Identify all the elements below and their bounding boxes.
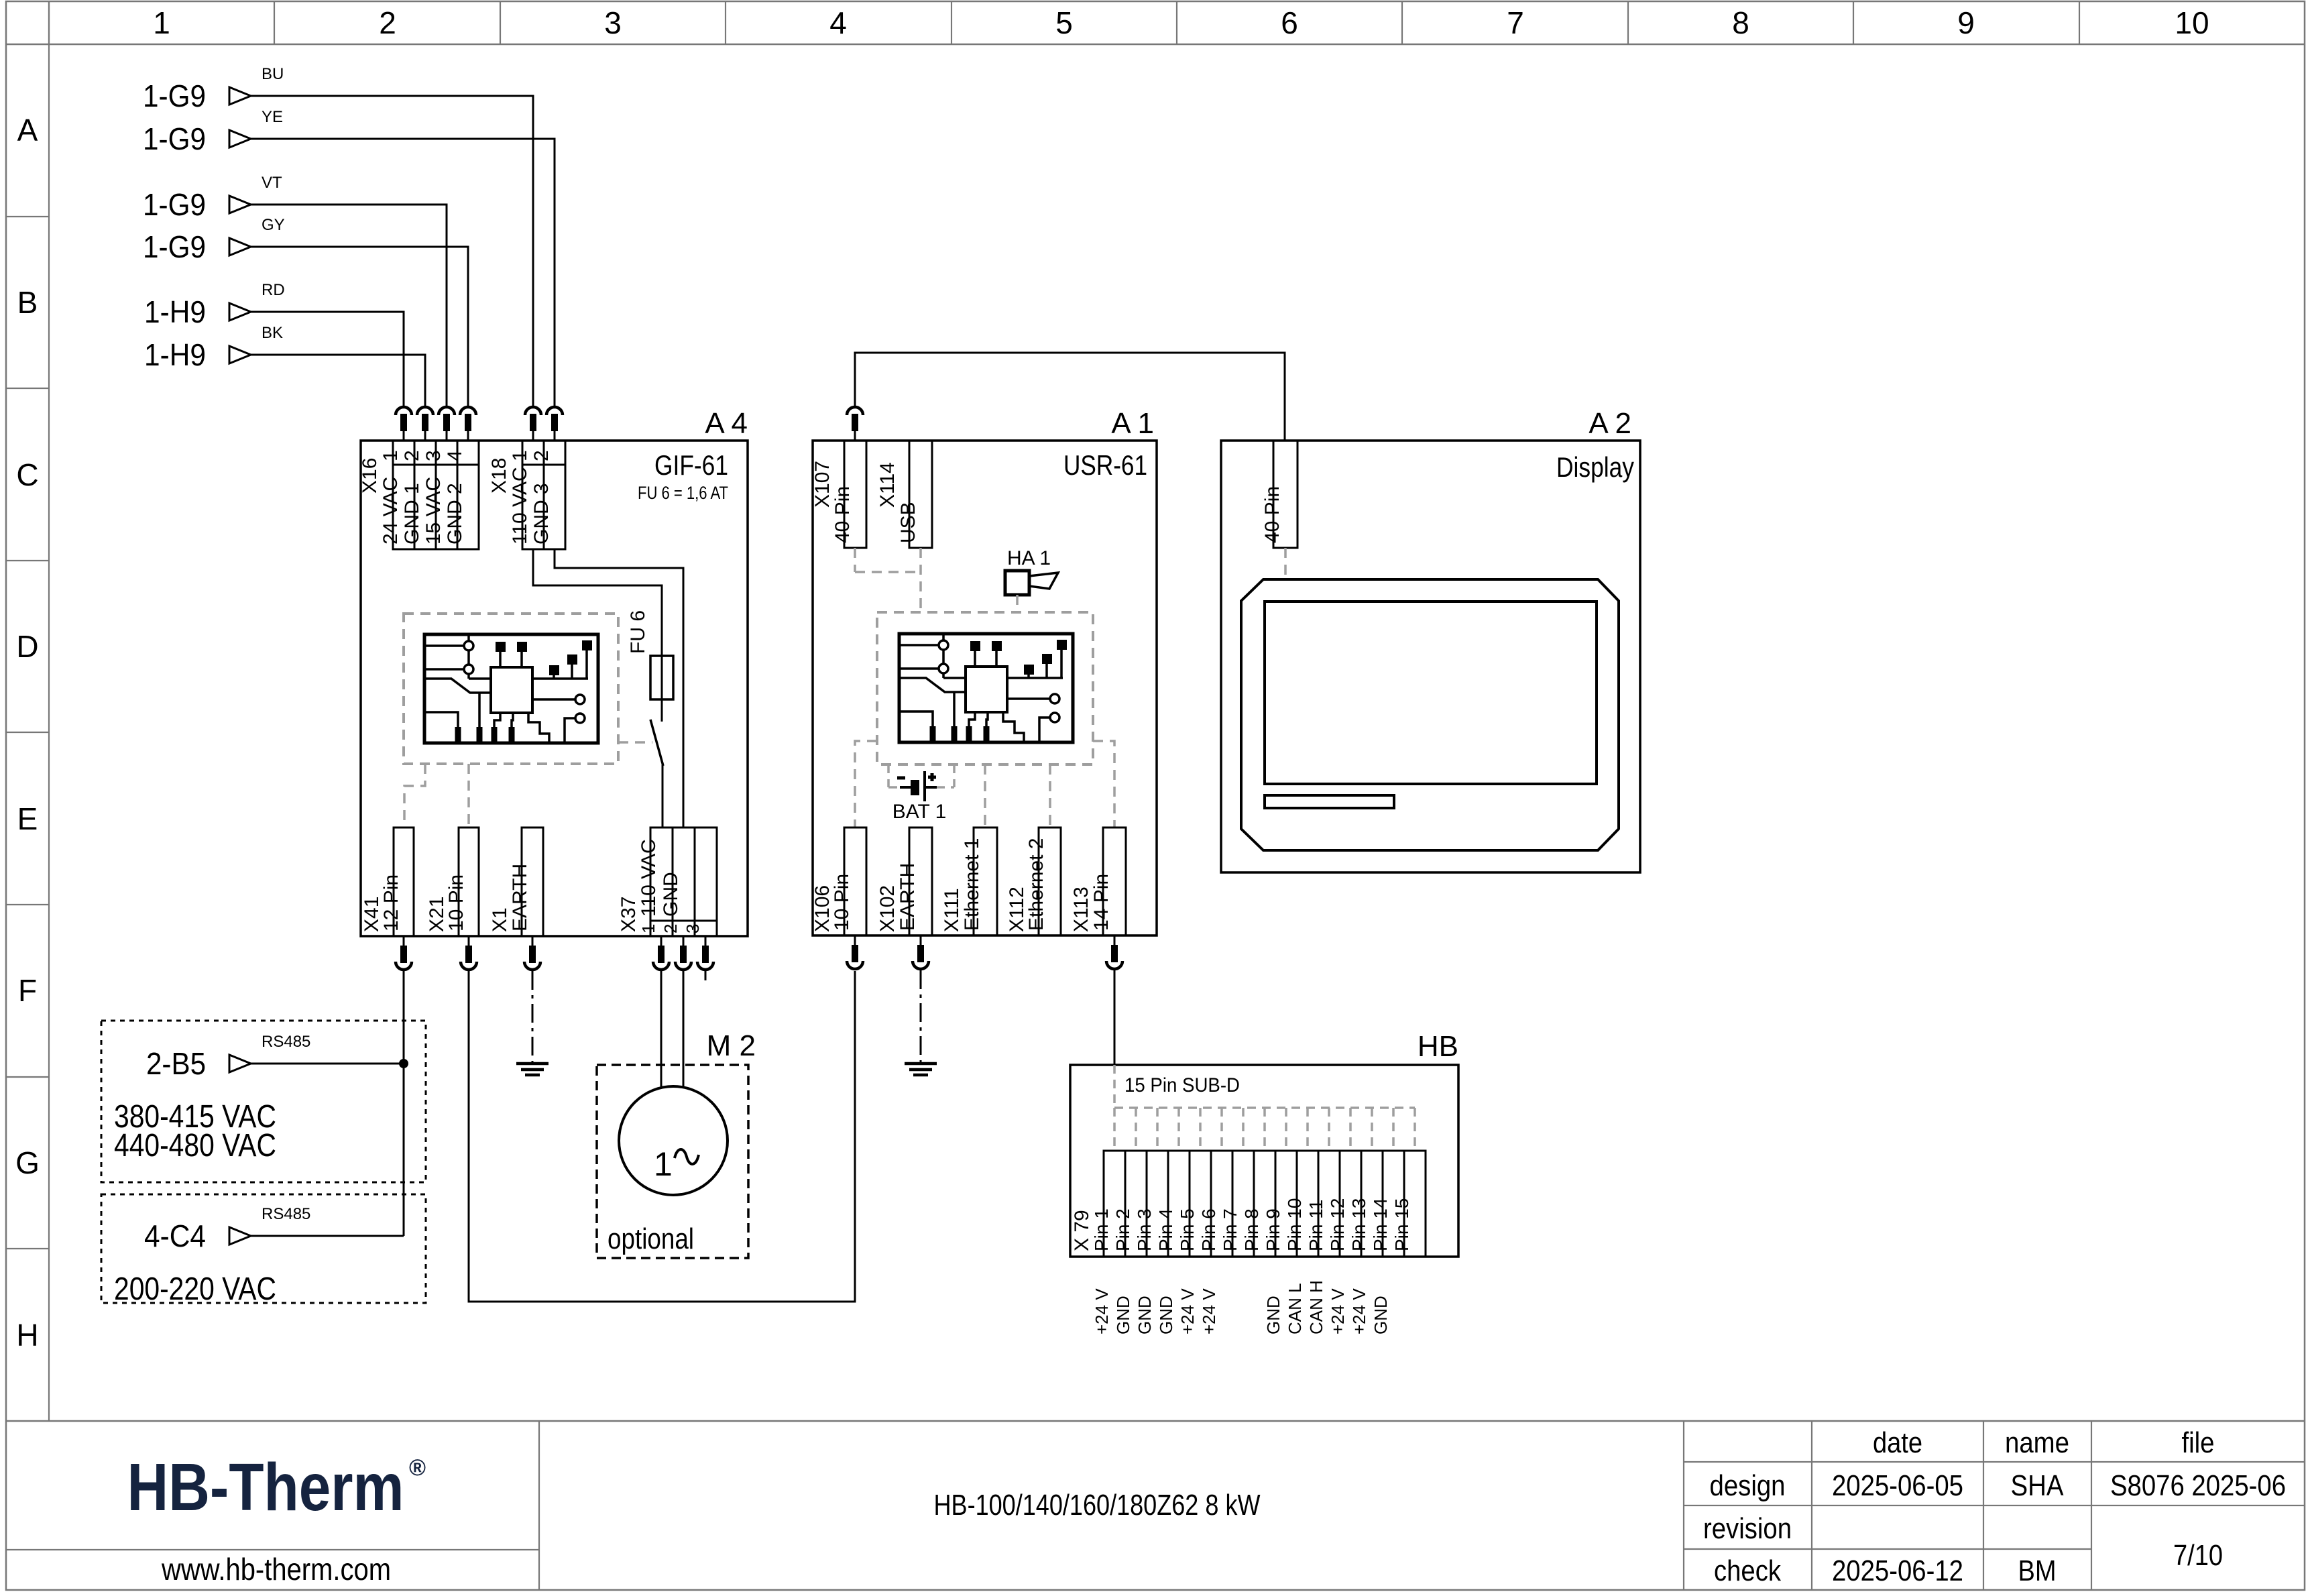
- svg-text:GND 3: GND 3: [530, 483, 553, 545]
- svg-text:1: 1: [654, 1145, 673, 1183]
- svg-text:110 VAC: 110 VAC: [509, 467, 531, 545]
- svg-text:Pin 8: Pin 8: [1241, 1208, 1262, 1251]
- svg-text:file: file: [2182, 1426, 2215, 1459]
- svg-text:G: G: [15, 1145, 40, 1180]
- svg-text:200-220 VAC: 200-220 VAC: [114, 1271, 276, 1307]
- svg-text:15 VAC: 15 VAC: [422, 477, 445, 545]
- svg-text:110 VAC: 110 VAC: [638, 839, 660, 917]
- svg-text:6: 6: [1281, 5, 1298, 40]
- svg-text:YE: YE: [262, 108, 283, 126]
- svg-text:HB-100/140/160/180Z62 8 kW: HB-100/140/160/180Z62 8 kW: [934, 1489, 1261, 1522]
- svg-text:7: 7: [1507, 5, 1524, 40]
- svg-text:H: H: [16, 1318, 38, 1353]
- svg-text:Pin 6: Pin 6: [1198, 1208, 1219, 1251]
- svg-text:GND: GND: [1135, 1296, 1155, 1334]
- svg-text:VT: VT: [262, 174, 282, 192]
- svg-text:HB: HB: [1418, 1030, 1458, 1063]
- svg-text:10: 10: [2175, 5, 2209, 40]
- svg-text:optional: optional: [608, 1222, 694, 1255]
- svg-text:GND: GND: [1156, 1296, 1176, 1334]
- svg-text:BM: BM: [2018, 1554, 2057, 1587]
- svg-text:1: 1: [153, 5, 170, 40]
- svg-text:Pin 9: Pin 9: [1263, 1208, 1283, 1251]
- svg-text:A 1: A 1: [1111, 407, 1154, 440]
- svg-text:BK: BK: [262, 324, 283, 342]
- svg-text:Pin 14: Pin 14: [1370, 1198, 1391, 1251]
- svg-text:2025-06-12: 2025-06-12: [1832, 1554, 1963, 1587]
- svg-text:GND: GND: [1263, 1296, 1283, 1334]
- svg-text:1-H9: 1-H9: [144, 337, 206, 372]
- svg-text:GY: GY: [262, 216, 285, 234]
- svg-text:3: 3: [604, 5, 622, 40]
- svg-text:D: D: [16, 629, 38, 664]
- svg-text:X18: X18: [488, 458, 510, 494]
- svg-text:14 Pin: 14 Pin: [1090, 874, 1112, 931]
- svg-text:EARTH: EARTH: [897, 863, 919, 931]
- svg-text:Pin 1: Pin 1: [1091, 1208, 1112, 1251]
- svg-text:10 Pin: 10 Pin: [445, 874, 467, 931]
- svg-text:40 Pin: 40 Pin: [831, 486, 854, 543]
- svg-text:HB-Therm: HB-Therm: [127, 1450, 404, 1525]
- svg-text:USB: USB: [897, 502, 919, 543]
- svg-text:RS485: RS485: [262, 1205, 310, 1223]
- svg-text:2025-06-05: 2025-06-05: [1832, 1469, 1963, 1502]
- svg-text:8: 8: [1732, 5, 1749, 40]
- svg-text:CAN L: CAN L: [1285, 1283, 1305, 1334]
- svg-text:X37: X37: [618, 897, 640, 932]
- svg-text:10 Pin: 10 Pin: [831, 874, 853, 931]
- svg-text:CAN H: CAN H: [1306, 1280, 1326, 1334]
- svg-text:15 Pin SUB-D: 15 Pin SUB-D: [1124, 1074, 1240, 1096]
- svg-text:X41: X41: [361, 897, 383, 932]
- svg-text:RD: RD: [262, 281, 285, 299]
- svg-text:EARTH: EARTH: [509, 864, 531, 931]
- svg-text:3: 3: [683, 924, 703, 933]
- svg-text:A: A: [17, 113, 38, 148]
- svg-text:X112: X112: [1006, 887, 1028, 932]
- svg-text:S8076 2025-06: S8076 2025-06: [2110, 1469, 2286, 1502]
- svg-text:1-G9: 1-G9: [143, 121, 206, 156]
- svg-text:Pin 2: Pin 2: [1112, 1208, 1133, 1251]
- svg-text:1-G9: 1-G9: [143, 229, 206, 264]
- svg-text:9: 9: [1957, 5, 1975, 40]
- svg-text:check: check: [1714, 1554, 1782, 1587]
- svg-text:date: date: [1873, 1426, 1922, 1459]
- svg-text:E: E: [17, 801, 38, 836]
- svg-text:7/10: 7/10: [2173, 1539, 2223, 1572]
- svg-text:X1: X1: [489, 907, 511, 932]
- svg-text:M 2: M 2: [707, 1029, 756, 1062]
- svg-text:Pin 3: Pin 3: [1134, 1208, 1155, 1251]
- svg-text:GND 1: GND 1: [401, 483, 423, 545]
- svg-text:B: B: [17, 285, 38, 320]
- svg-text:Pin 4: Pin 4: [1155, 1208, 1176, 1251]
- svg-text:2: 2: [530, 450, 553, 461]
- svg-text:RS485: RS485: [262, 1033, 310, 1051]
- svg-text:X16: X16: [359, 458, 381, 494]
- svg-text:Pin 5: Pin 5: [1177, 1208, 1198, 1251]
- svg-text:®: ®: [409, 1455, 426, 1481]
- svg-text:Pin 13: Pin 13: [1348, 1198, 1369, 1251]
- svg-text:+24 V: +24 V: [1177, 1288, 1198, 1334]
- svg-text:24 VAC: 24 VAC: [380, 477, 402, 545]
- svg-text:1: 1: [380, 450, 402, 461]
- svg-text:name: name: [2005, 1426, 2069, 1459]
- svg-text:X113: X113: [1070, 887, 1092, 932]
- svg-text:+24 V: +24 V: [1199, 1288, 1219, 1334]
- svg-text:Ethernet 1: Ethernet 1: [961, 838, 983, 931]
- svg-text:FU 6: FU 6: [627, 610, 649, 654]
- svg-text:GND: GND: [1113, 1296, 1133, 1334]
- svg-text:5: 5: [1055, 5, 1073, 40]
- svg-text:C: C: [16, 457, 38, 492]
- svg-text:GND 2: GND 2: [444, 483, 466, 545]
- svg-text:Pin 11: Pin 11: [1306, 1200, 1326, 1251]
- svg-text:SHA: SHA: [2011, 1469, 2065, 1502]
- svg-text:2: 2: [660, 924, 681, 933]
- svg-text:A 4: A 4: [705, 407, 748, 440]
- svg-text:GND: GND: [660, 872, 682, 917]
- svg-text:Pin 15: Pin 15: [1391, 1198, 1412, 1251]
- svg-text:12 Pin: 12 Pin: [380, 874, 402, 931]
- svg-text:X21: X21: [426, 897, 448, 932]
- svg-text:1-G9: 1-G9: [143, 78, 206, 113]
- svg-text:4: 4: [444, 450, 466, 461]
- svg-text:Pin 7: Pin 7: [1220, 1208, 1240, 1251]
- svg-text:Display: Display: [1556, 451, 1634, 483]
- svg-text:1-G9: 1-G9: [143, 187, 206, 222]
- svg-text:1: 1: [638, 924, 658, 933]
- svg-text:www.hb-therm.com: www.hb-therm.com: [161, 1552, 391, 1587]
- svg-text:Ethernet 2: Ethernet 2: [1025, 838, 1047, 931]
- svg-text:F: F: [18, 973, 37, 1008]
- svg-text:USR-61: USR-61: [1063, 449, 1147, 481]
- svg-text:1: 1: [509, 450, 531, 461]
- svg-text:X 79: X 79: [1071, 1210, 1093, 1251]
- svg-text:3: 3: [422, 450, 445, 461]
- svg-text:2: 2: [379, 5, 396, 40]
- svg-text:+24 V: +24 V: [1349, 1288, 1369, 1334]
- svg-text:HA 1: HA 1: [1007, 547, 1051, 569]
- svg-text:X107: X107: [811, 461, 833, 508]
- svg-text:X111: X111: [941, 888, 963, 932]
- svg-text:BU: BU: [262, 65, 284, 83]
- svg-text:+24 V: +24 V: [1092, 1288, 1112, 1334]
- svg-text:Pin 12: Pin 12: [1327, 1198, 1348, 1251]
- svg-text:Pin 10: Pin 10: [1284, 1198, 1305, 1251]
- svg-text:GIF-61: GIF-61: [654, 449, 728, 481]
- svg-text:GND: GND: [1371, 1296, 1391, 1334]
- svg-text:revision: revision: [1703, 1512, 1792, 1545]
- svg-text:440-480 VAC: 440-480 VAC: [114, 1128, 276, 1163]
- svg-text:4: 4: [829, 5, 847, 40]
- svg-text:X106: X106: [811, 885, 833, 932]
- svg-text:+24 V: +24 V: [1328, 1288, 1348, 1334]
- svg-text:2: 2: [401, 450, 423, 461]
- svg-text:2-B5: 2-B5: [146, 1046, 206, 1081]
- svg-text:FU 6 = 1,6 AT: FU 6 = 1,6 AT: [638, 483, 728, 503]
- svg-text:A 2: A 2: [1589, 407, 1631, 440]
- svg-text:40 Pin: 40 Pin: [1261, 486, 1283, 543]
- svg-text:4-C4: 4-C4: [144, 1218, 206, 1253]
- svg-text:1-H9: 1-H9: [144, 294, 206, 329]
- svg-text:X102: X102: [876, 885, 899, 932]
- svg-text:design: design: [1710, 1469, 1786, 1502]
- svg-text:BAT 1: BAT 1: [892, 801, 947, 823]
- svg-text:X114: X114: [876, 462, 899, 508]
